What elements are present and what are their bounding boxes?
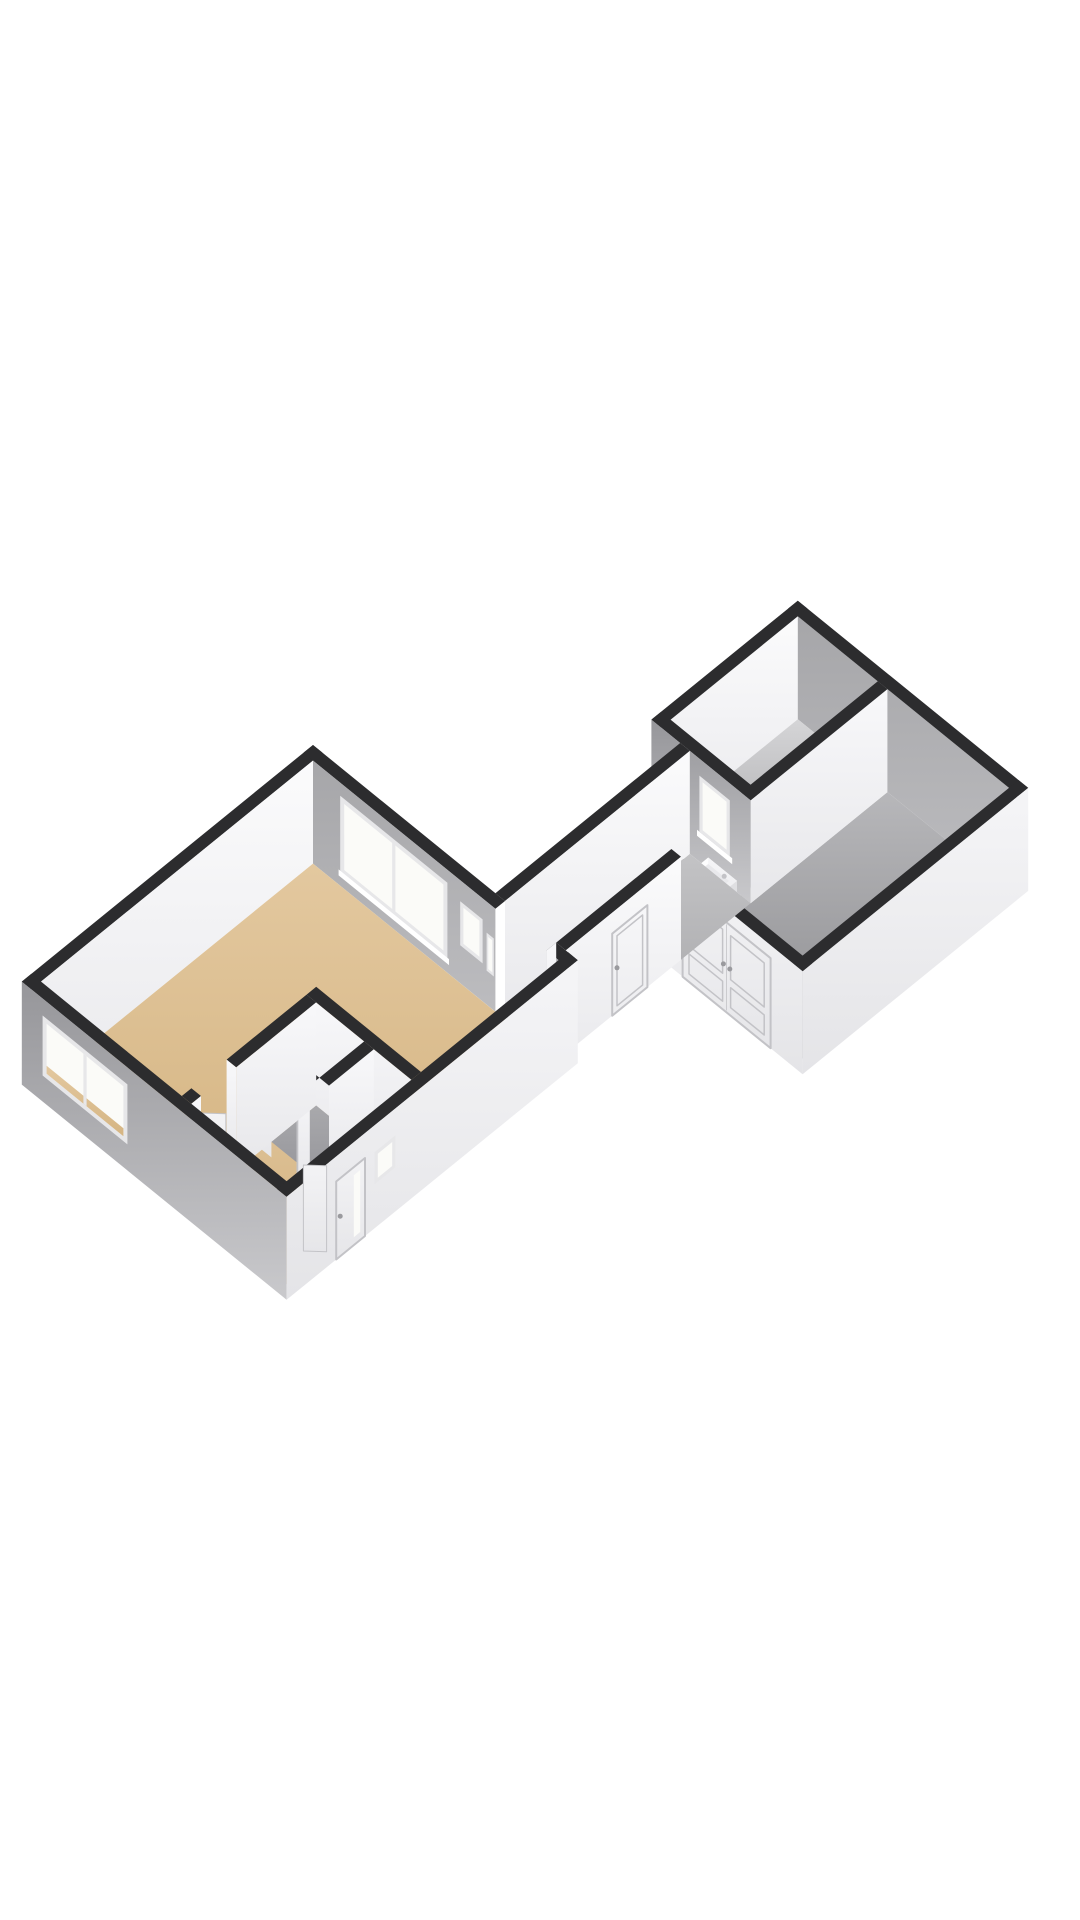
floorplan-page bbox=[0, 0, 1080, 1920]
corridor-door-handle bbox=[615, 965, 620, 970]
entrance-door-glazing bbox=[354, 1170, 360, 1237]
topright-wall-narrow-window-glass bbox=[488, 937, 492, 972]
entrance-door-handle bbox=[338, 1214, 343, 1219]
double-door-center-seam bbox=[726, 924, 727, 1011]
double-door-handle-left bbox=[721, 961, 726, 966]
bottomleft-window-mullion bbox=[83, 1054, 86, 1107]
entrance-door-leaf bbox=[303, 1165, 326, 1252]
double-door-handle-right bbox=[727, 967, 732, 972]
floorplan-3d-render bbox=[0, 0, 1080, 1920]
sink-faucet bbox=[722, 874, 727, 879]
